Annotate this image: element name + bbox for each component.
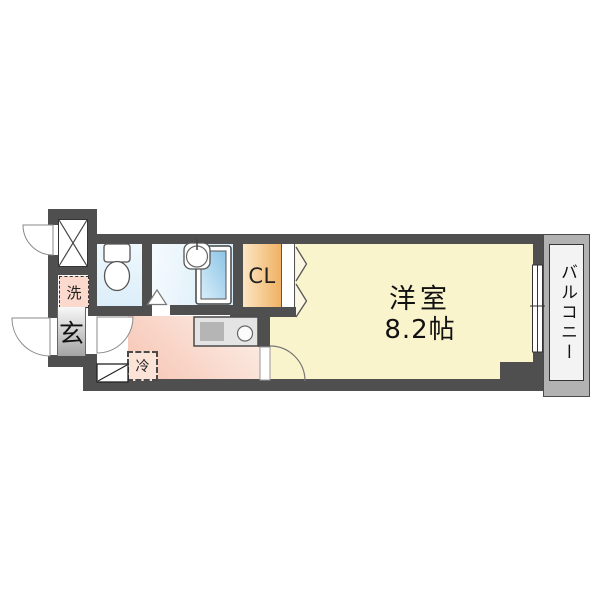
kitchen-sink-icon [238, 326, 253, 341]
meter-box-door-swing [23, 225, 53, 255]
kitchen-counter-icon [194, 317, 258, 346]
closet-folding-door-icon [296, 247, 307, 317]
fixtures-overlay [0, 0, 600, 600]
burner-icon [200, 322, 224, 341]
wash-basin-icon [184, 239, 210, 269]
meter-box-x-icon [59, 220, 87, 266]
hall-door-swing [97, 317, 133, 353]
entrance-door-swing [12, 318, 50, 356]
room-door-leaf [260, 347, 270, 380]
floor-plan: バルコニー 洗 玄 冷 CL 洋室 8.2帖 [0, 0, 600, 600]
room-door-swing [270, 346, 305, 381]
bath-door-triangle [148, 290, 167, 305]
sliding-window-icon [530, 265, 545, 352]
shoe-cabinet-icon [97, 364, 128, 382]
toilet-icon [104, 244, 130, 291]
